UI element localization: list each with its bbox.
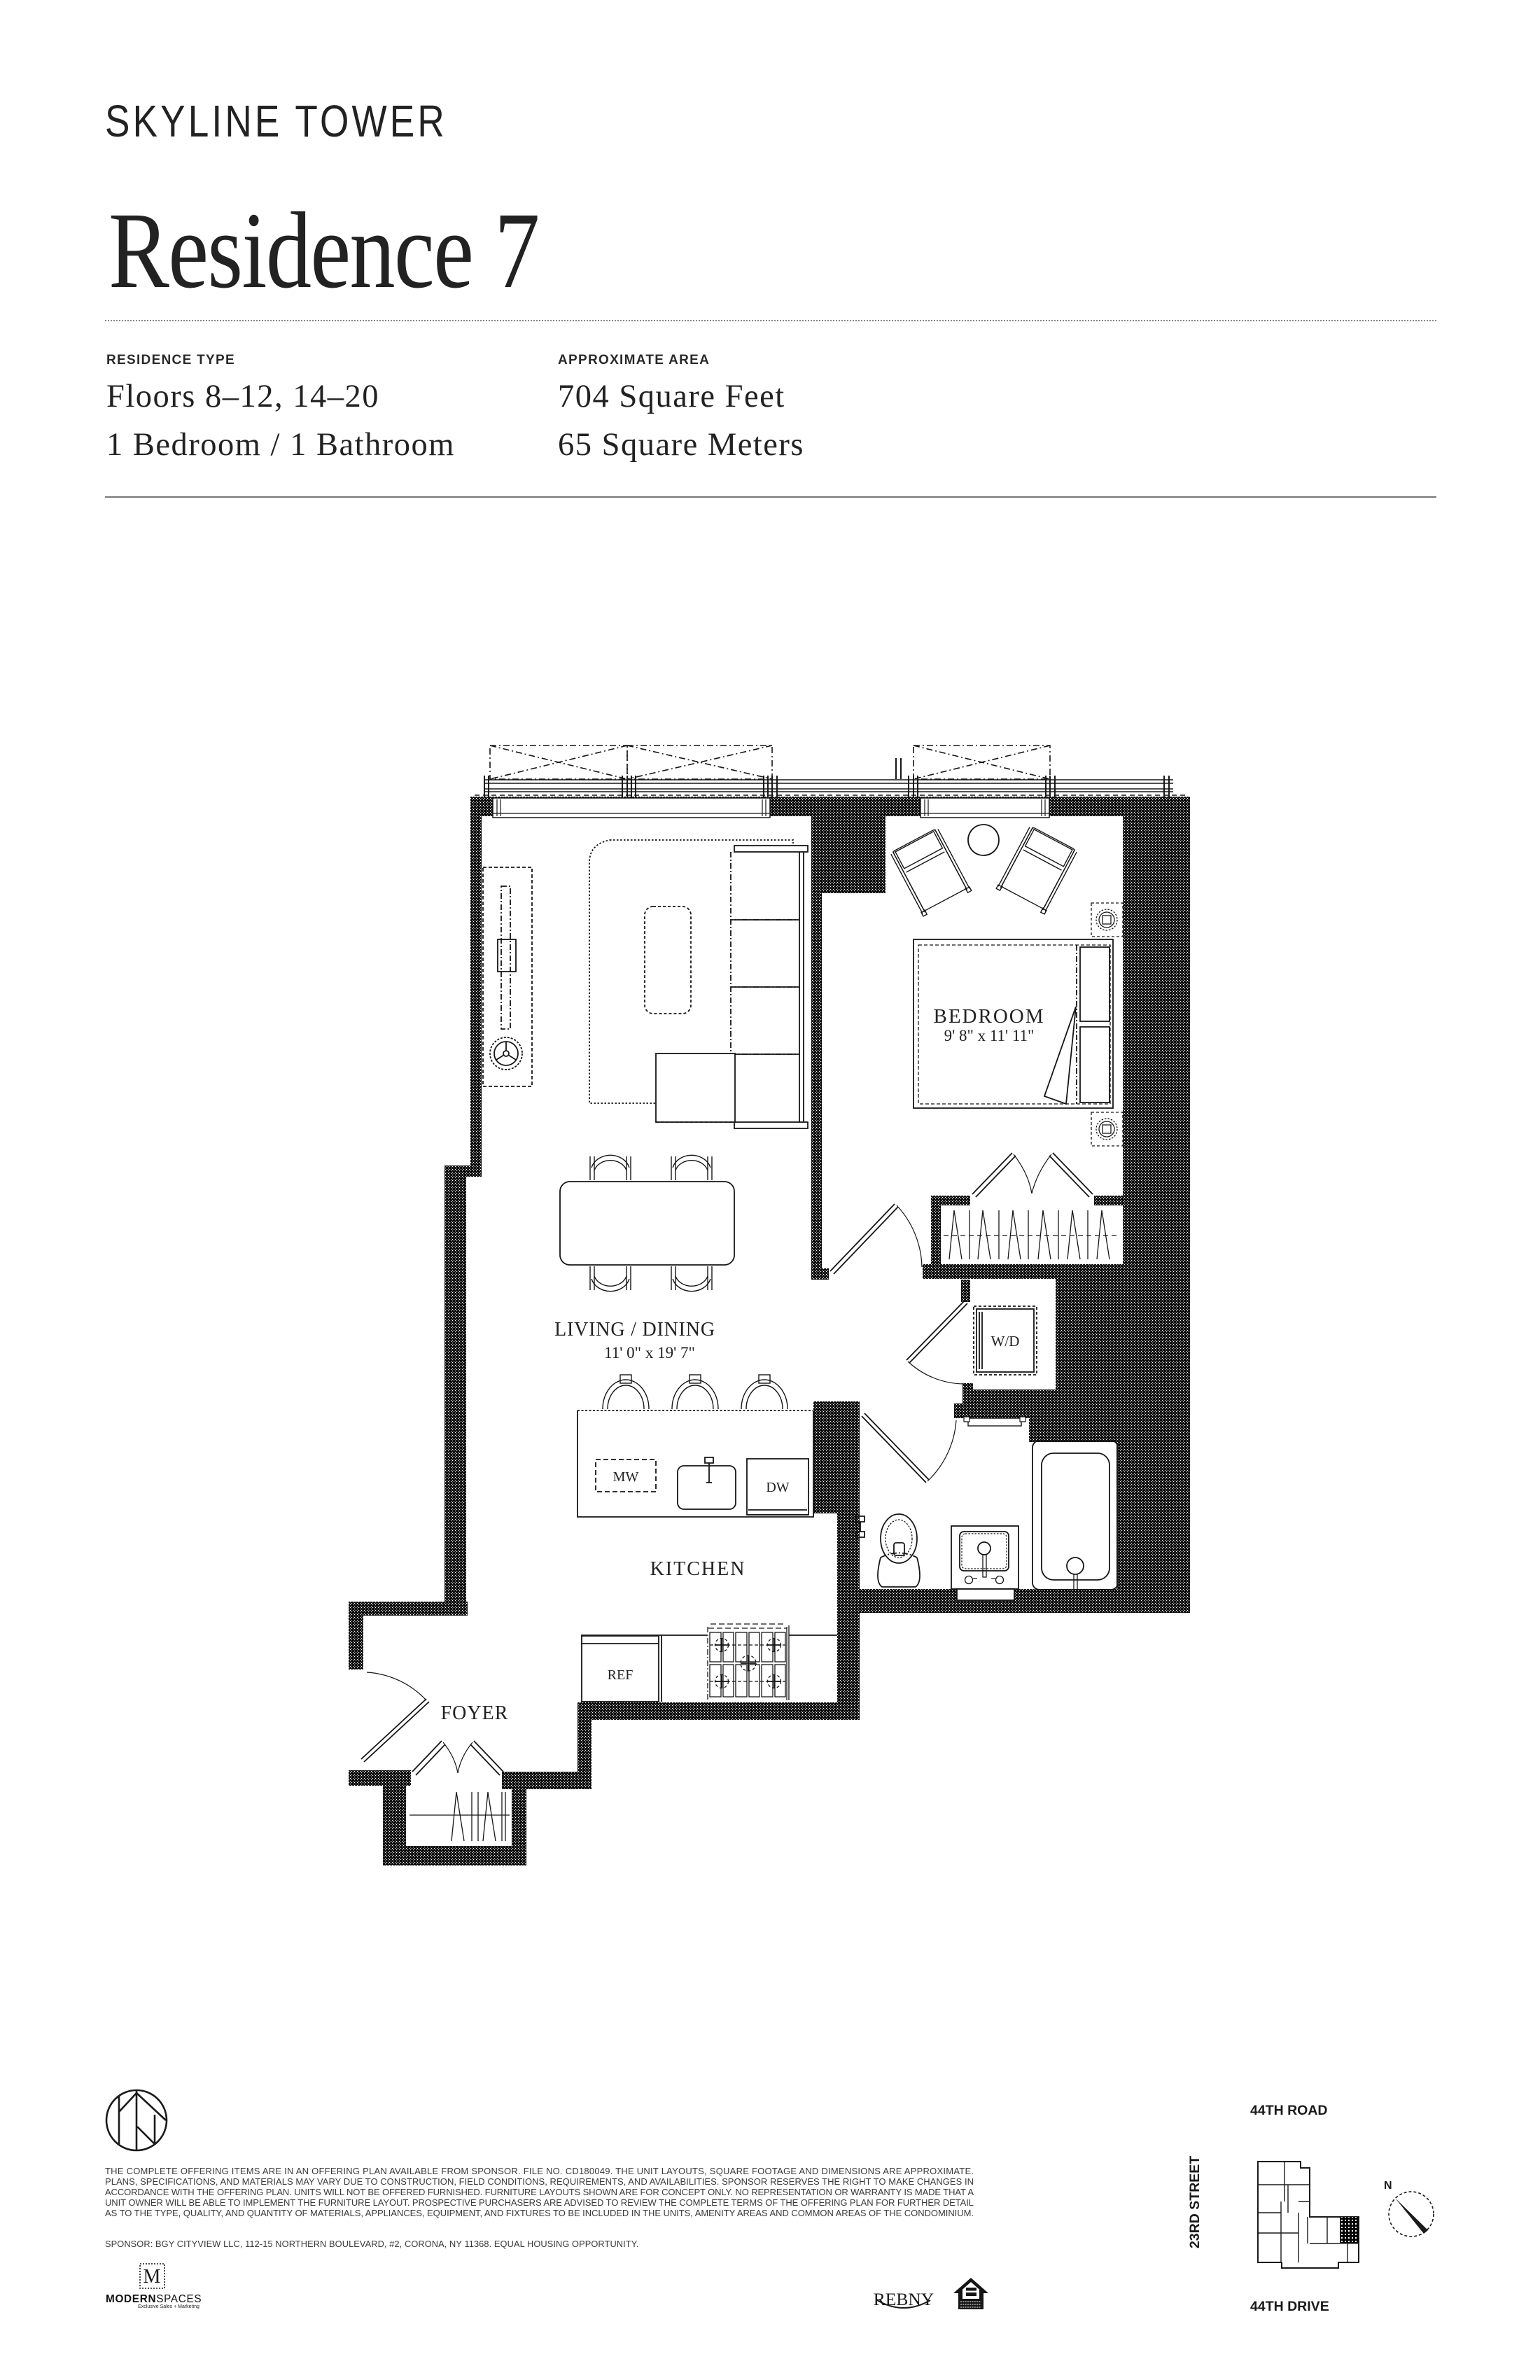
svg-text:FOYER: FOYER bbox=[441, 1702, 509, 1724]
svg-text:SPONSOR: BGY CITYVIEW LLC, 112: SPONSOR: BGY CITYVIEW LLC, 112-15 NORTHE… bbox=[105, 2239, 638, 2249]
svg-text:44TH ROAD: 44TH ROAD bbox=[1250, 2103, 1328, 2118]
svg-text:THE COMPLETE OFFERING ITEMS AR: THE COMPLETE OFFERING ITEMS ARE IN AN OF… bbox=[105, 2166, 974, 2176]
svg-text:MODERNSPACES: MODERNSPACES bbox=[106, 2293, 202, 2305]
svg-text:LIVING / DINING: LIVING / DINING bbox=[554, 1319, 715, 1340]
svg-text:11' 0" x 19' 7": 11' 0" x 19' 7" bbox=[604, 1344, 695, 1361]
svg-text:23RD STREET: 23RD STREET bbox=[1187, 2156, 1203, 2248]
svg-text:44TH DRIVE: 44TH DRIVE bbox=[1250, 2299, 1329, 2314]
svg-text:PLANS, SPECIFICATIONS, AND MAT: PLANS, SPECIFICATIONS, AND MATERIALS MAY… bbox=[105, 2176, 974, 2187]
svg-text:Exclusive Sales + Marketing: Exclusive Sales + Marketing bbox=[138, 2304, 199, 2309]
svg-text:KITCHEN: KITCHEN bbox=[650, 1558, 746, 1580]
svg-text:W/D: W/D bbox=[991, 1333, 1020, 1350]
svg-text:DW: DW bbox=[766, 1480, 789, 1495]
svg-text:ACCORDANCE WITH THE OFFERING P: ACCORDANCE WITH THE OFFERING PLAN. UNITS… bbox=[105, 2187, 974, 2197]
svg-text:BEDROOM: BEDROOM bbox=[933, 1005, 1044, 1028]
svg-text:AS TO THE TYPE, QUALITY, AND Q: AS TO THE TYPE, QUALITY, AND QUANTITY OF… bbox=[105, 2208, 974, 2218]
svg-text:MW: MW bbox=[613, 1469, 639, 1485]
svg-text:M: M bbox=[143, 2266, 161, 2288]
svg-text:9' 8" x 11' 11": 9' 8" x 11' 11" bbox=[944, 1027, 1035, 1044]
svg-text:UNIT OWNER WILL BE ABLE TO IMP: UNIT OWNER WILL BE ABLE TO IMPLEMENT THE… bbox=[105, 2197, 974, 2208]
svg-text:REBNY: REBNY bbox=[874, 2289, 934, 2309]
svg-text:N: N bbox=[1384, 2180, 1392, 2192]
svg-text:REF: REF bbox=[608, 1667, 633, 1683]
